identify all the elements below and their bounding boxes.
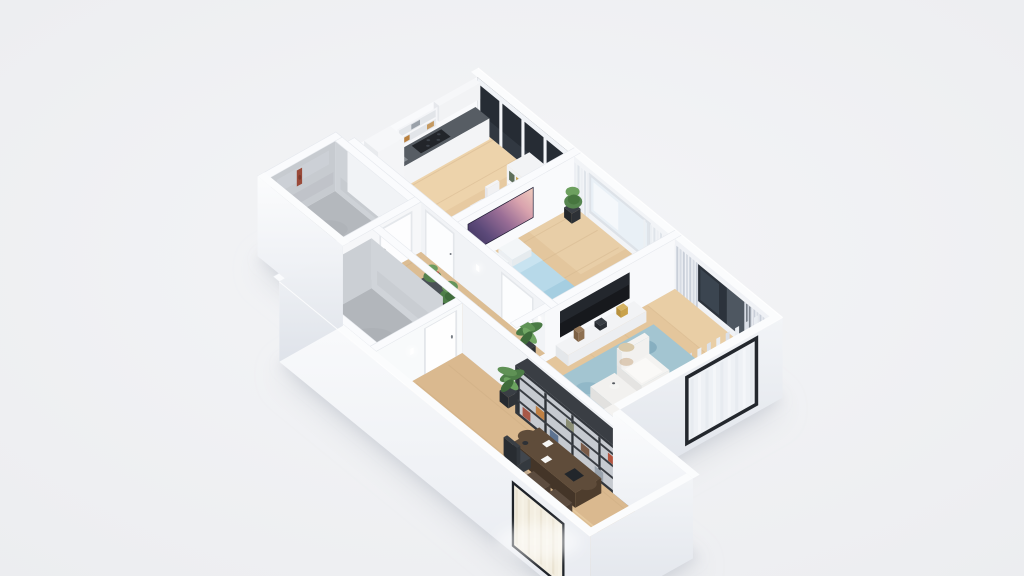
- door-handle: [451, 335, 453, 339]
- bedroom-plant-foliage: [568, 195, 580, 205]
- sconce-glow: [408, 347, 416, 355]
- desk-lamp: [522, 441, 528, 445]
- burner: [426, 145, 430, 147]
- desk-rounded-end: [577, 478, 597, 490]
- side-table-shadow: [619, 358, 633, 366]
- burner: [437, 133, 441, 135]
- side-table-top: [618, 343, 634, 352]
- floorplan-viewport: [0, 0, 1024, 576]
- wall-fixture-dot: [298, 175, 301, 180]
- sw-window-glow: [496, 524, 580, 560]
- desk-rounded-end: [518, 430, 538, 442]
- burner: [427, 139, 431, 141]
- ottoman-pet-spot: [612, 382, 615, 384]
- door-handle: [450, 253, 452, 255]
- burner: [437, 139, 441, 141]
- sconce-glow: [474, 264, 482, 272]
- floorplan-3d-render: [0, 0, 1024, 576]
